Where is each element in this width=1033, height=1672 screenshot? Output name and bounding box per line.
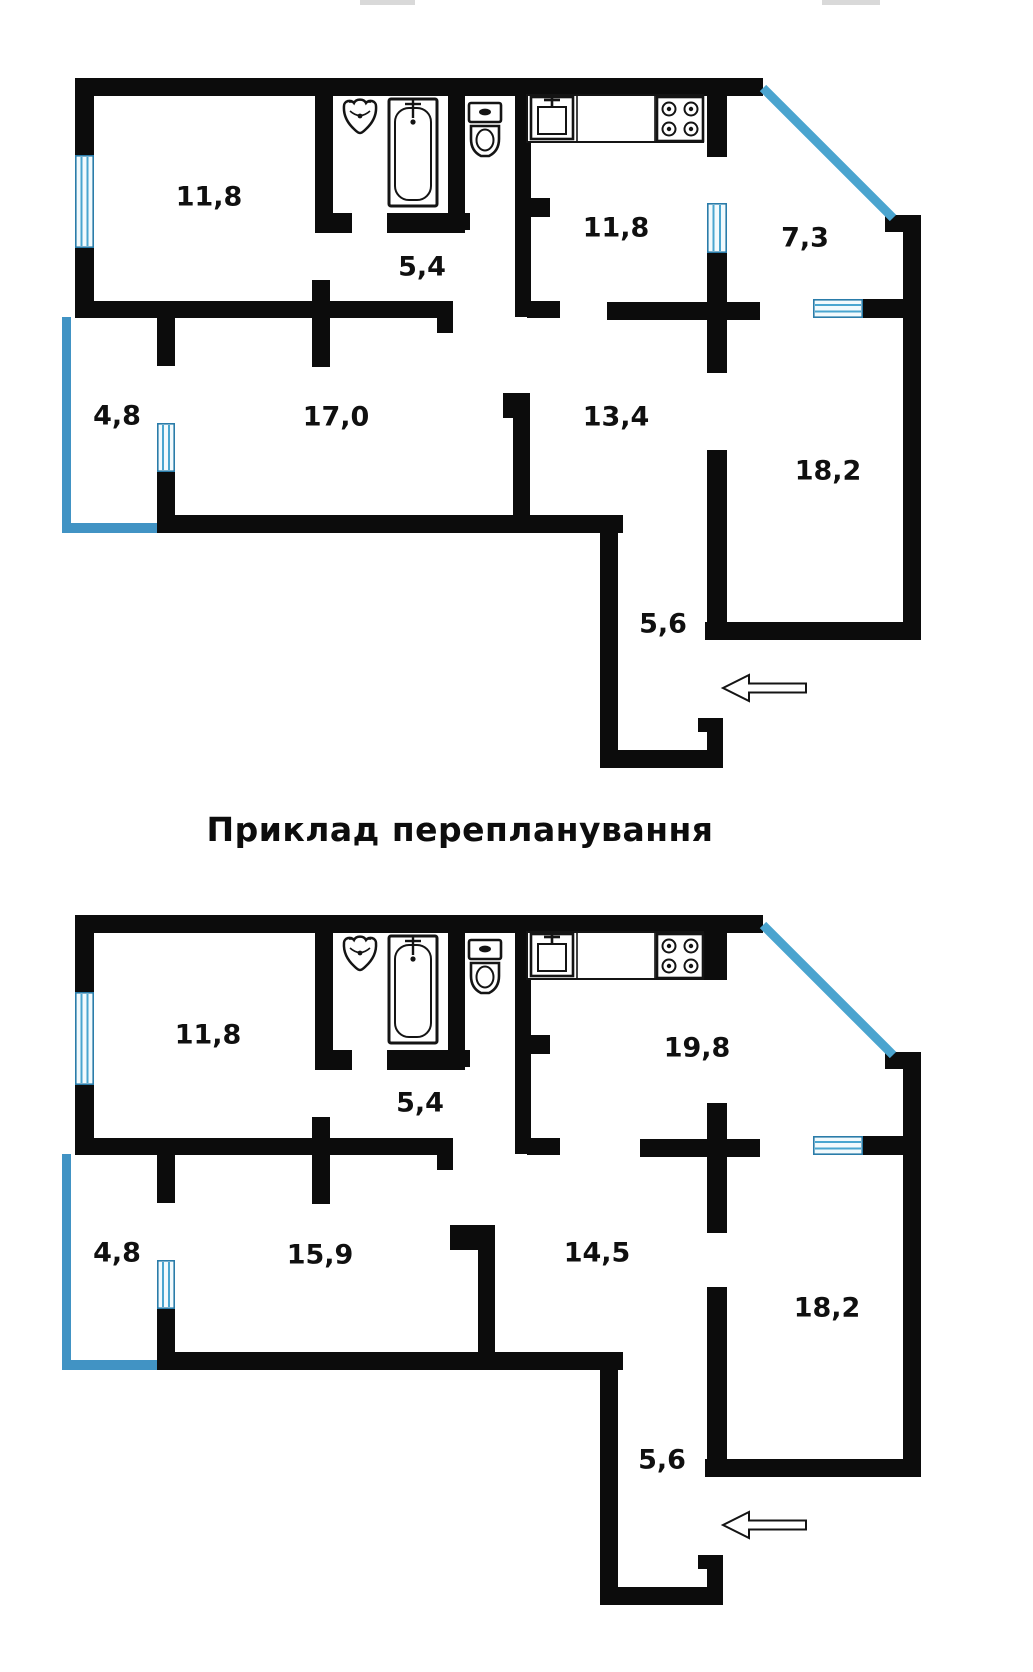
room-label-room-large: 18,2 [794, 1293, 861, 1324]
room-label-balcony-left: 4,8 [93, 401, 141, 432]
floor-plan-page: 11,8 5,4 11,8 7,3 4,8 17,0 13,4 18,2 5,6 [0, 0, 1033, 1672]
room-label-balcony-left: 4,8 [93, 1238, 141, 1269]
room-label-room-large: 18,2 [795, 456, 862, 487]
room-label-corridor-small: 5,4 [398, 252, 446, 283]
window-icon [158, 1261, 174, 1308]
room-label-entry: 5,6 [638, 1445, 686, 1476]
room-label-entry: 5,6 [639, 609, 687, 640]
room-label-hallway: 13,4 [583, 402, 650, 433]
original-plan: 11,8 5,4 11,8 7,3 4,8 17,0 13,4 18,2 5,6 [62, 78, 921, 768]
entrance-arrow [723, 1512, 806, 1538]
window-icon [708, 204, 726, 252]
room-label-hallway: 14,5 [564, 1238, 631, 1269]
room-label-kitchen-combined: 19,8 [664, 1033, 731, 1064]
balcony-glazing-diagonal [763, 88, 893, 218]
scan-artifact [822, 0, 880, 5]
room-label-bedroom: 17,0 [303, 402, 370, 433]
window-icon [814, 1137, 862, 1154]
window-icon [158, 424, 174, 471]
room-label-kitchen: 11,8 [583, 213, 650, 244]
room-label-living: 11,8 [175, 1020, 242, 1051]
room-label-living: 11,8 [176, 182, 243, 213]
entrance-arrow [723, 675, 806, 701]
replanned-plan: 11,8 5,4 19,8 4,8 15,9 14,5 18,2 5,6 [62, 915, 921, 1605]
replanned-plan-walls [75, 915, 921, 1605]
room-label-bedroom: 15,9 [287, 1240, 354, 1271]
room-label-balcony-right: 7,3 [781, 223, 829, 254]
scan-artifact [360, 0, 415, 5]
window-icon [76, 156, 93, 247]
window-icon [76, 993, 93, 1084]
balcony-glazing-diagonal [763, 925, 893, 1055]
page-title: Приклад перепланування [60, 810, 860, 849]
room-label-corridor-small: 5,4 [396, 1088, 444, 1119]
window-icon [814, 300, 862, 317]
original-plan-labels: 11,8 5,4 11,8 7,3 4,8 17,0 13,4 18,2 5,6 [93, 182, 861, 640]
